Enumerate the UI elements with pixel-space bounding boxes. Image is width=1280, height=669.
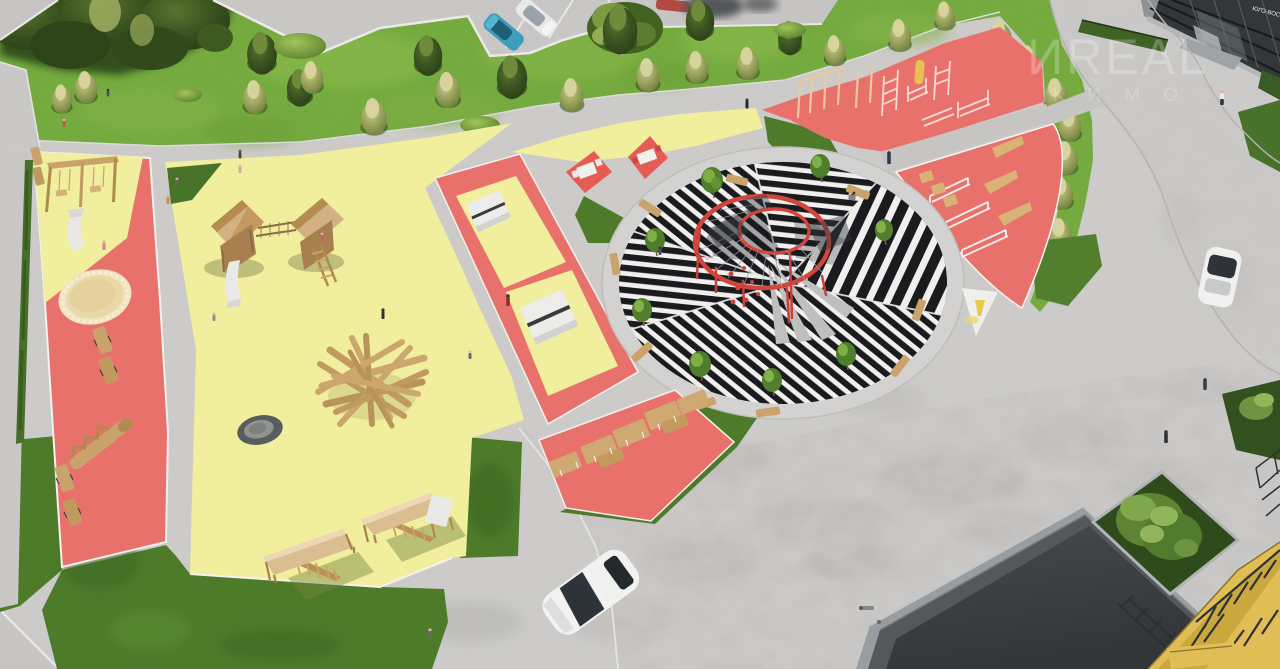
svg-text:К И М О: К И М О	[1053, 85, 1187, 106]
svg-text:ИREAL: ИREAL	[1027, 29, 1209, 85]
